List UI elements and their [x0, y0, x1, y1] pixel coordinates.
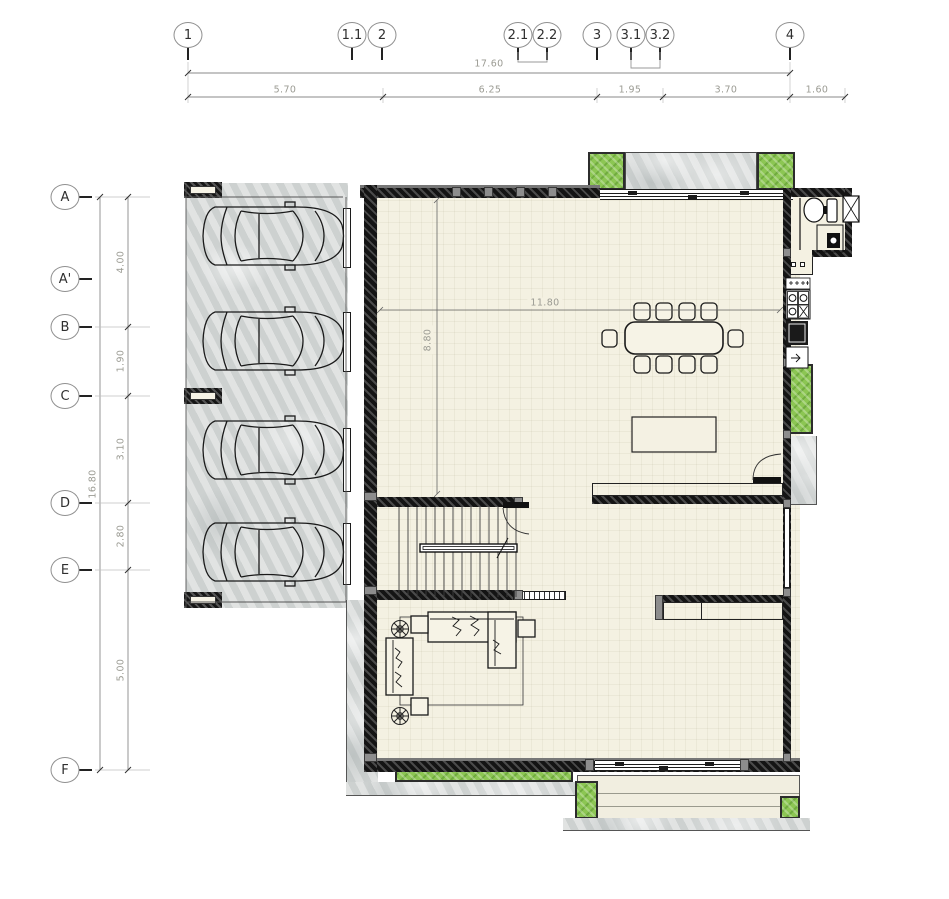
- dim-interior-width: 11.80: [527, 298, 562, 309]
- hall-door-swing-icon: [753, 454, 781, 483]
- dim-ticks: [97, 70, 848, 773]
- grid-bubble-A: A: [51, 184, 80, 210]
- dim-left-seg-2: 1.90: [116, 347, 127, 376]
- sofa-loveseat-icon: [386, 638, 413, 695]
- floor-plan: 1 1.1 2 2.1 2.2 3 3.1 3.2 4 A A' B C D E…: [0, 0, 949, 899]
- grid-bubble-2.1: 2.1: [504, 22, 533, 48]
- oven-icon: [786, 321, 808, 345]
- grid-bubble-F: F: [51, 757, 80, 783]
- plan-linework: [0, 0, 949, 899]
- car-icon: [203, 307, 344, 375]
- grid-bubble-E: E: [51, 557, 80, 583]
- dim-left-total: 16.80: [88, 466, 99, 501]
- car-icon: [203, 416, 344, 484]
- sofa-sectional-icon: [428, 612, 516, 668]
- dim-lines: [95, 62, 845, 770]
- grid-bubble-2: 2: [368, 22, 397, 48]
- grid-bubble-4: 4: [776, 22, 805, 48]
- grid-bubble-B: B: [51, 314, 80, 340]
- car-icon: [203, 202, 344, 270]
- cooktop-icon: [786, 290, 810, 319]
- car-icon: [203, 518, 344, 586]
- dim-left-seg-3: 3.10: [116, 435, 127, 464]
- dim-top-seg-2: 6.25: [476, 85, 505, 96]
- plant-icon: [392, 621, 409, 638]
- shower-icon: [817, 225, 843, 252]
- plant-icon: [392, 708, 409, 725]
- grid-bubble-3.1: 3.1: [617, 22, 646, 48]
- grid-bubble-2.2: 2.2: [533, 22, 562, 48]
- grid-bubble-3.2: 3.2: [646, 22, 675, 48]
- toilet-icon: [804, 198, 837, 222]
- dim-top-seg-3: 1.95: [616, 85, 645, 96]
- grid-bubble-1.1: 1.1: [338, 22, 367, 48]
- dim-top-seg-4: 3.70: [712, 85, 741, 96]
- dim-left-seg-5: 5.00: [116, 656, 127, 685]
- kitchen-knob-row: [786, 278, 810, 289]
- dim-left-seg-1: 4.00: [116, 248, 127, 277]
- dim-top-total: 17.60: [471, 59, 506, 70]
- grid-bubble-3: 3: [583, 22, 612, 48]
- kitchen-island-icon: [632, 417, 716, 452]
- dishwasher-icon: [786, 347, 808, 368]
- dim-top-seg-5: 1.60: [803, 85, 832, 96]
- dining-table-icon: [625, 322, 723, 354]
- dim-interior-depth: 8.80: [423, 326, 434, 355]
- dim-top-seg-1: 5.70: [271, 85, 300, 96]
- grid-bubble-C: C: [51, 383, 80, 409]
- grid-bubble-1: 1: [174, 22, 203, 48]
- grid-brackets: [518, 52, 660, 68]
- grid-bubble-A2: A': [51, 266, 80, 292]
- dim-left-seg-4: 2.80: [116, 522, 127, 551]
- bathroom-window-icon: [843, 196, 859, 222]
- grid-bubble-D: D: [51, 490, 80, 516]
